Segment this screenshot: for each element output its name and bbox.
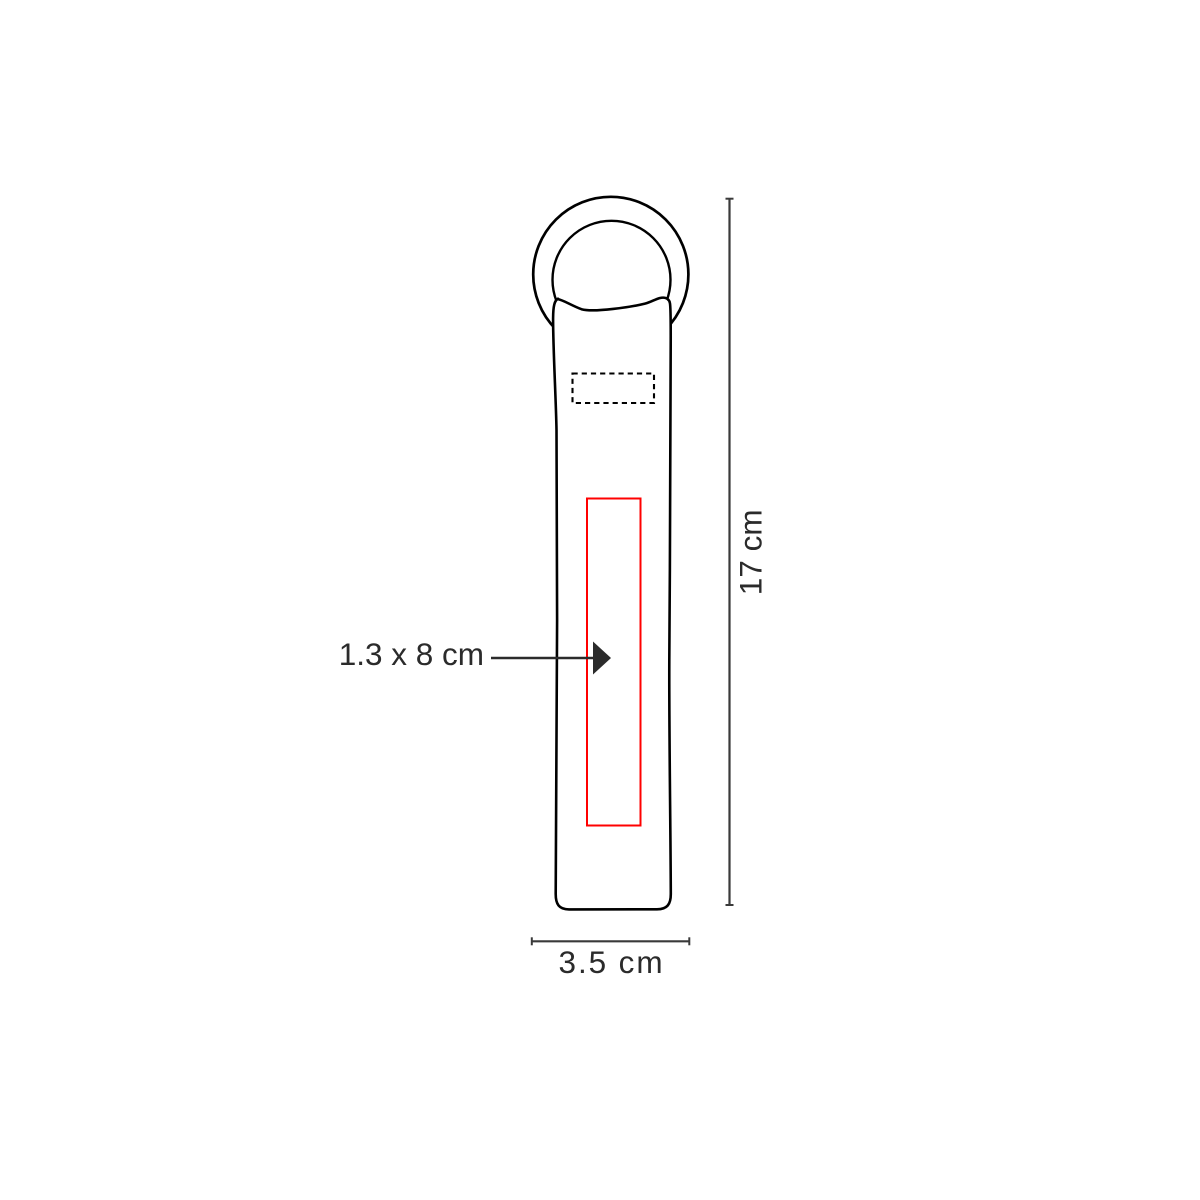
svg-text:1.3 x 8 cm: 1.3 x 8 cm <box>339 636 484 672</box>
svg-text:3.5 cm: 3.5 cm <box>559 944 665 980</box>
svg-text:17 cm: 17 cm <box>733 509 769 595</box>
